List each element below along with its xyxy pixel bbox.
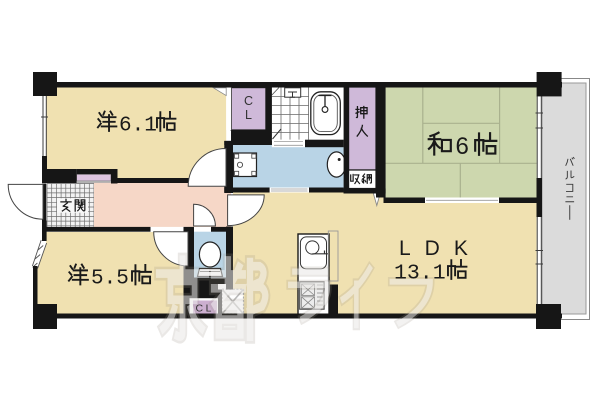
svg-text:5.5: 5.5 — [91, 268, 129, 291]
svg-text:13.1: 13.1 — [394, 262, 446, 286]
svg-text:6: 6 — [456, 133, 469, 160]
svg-text:L: L — [245, 108, 252, 122]
svg-text:C: C — [244, 94, 253, 108]
svg-text:LDK: LDK — [399, 237, 482, 260]
svg-text:CL: CL — [196, 303, 214, 315]
svg-text:6.1: 6.1 — [119, 115, 157, 138]
